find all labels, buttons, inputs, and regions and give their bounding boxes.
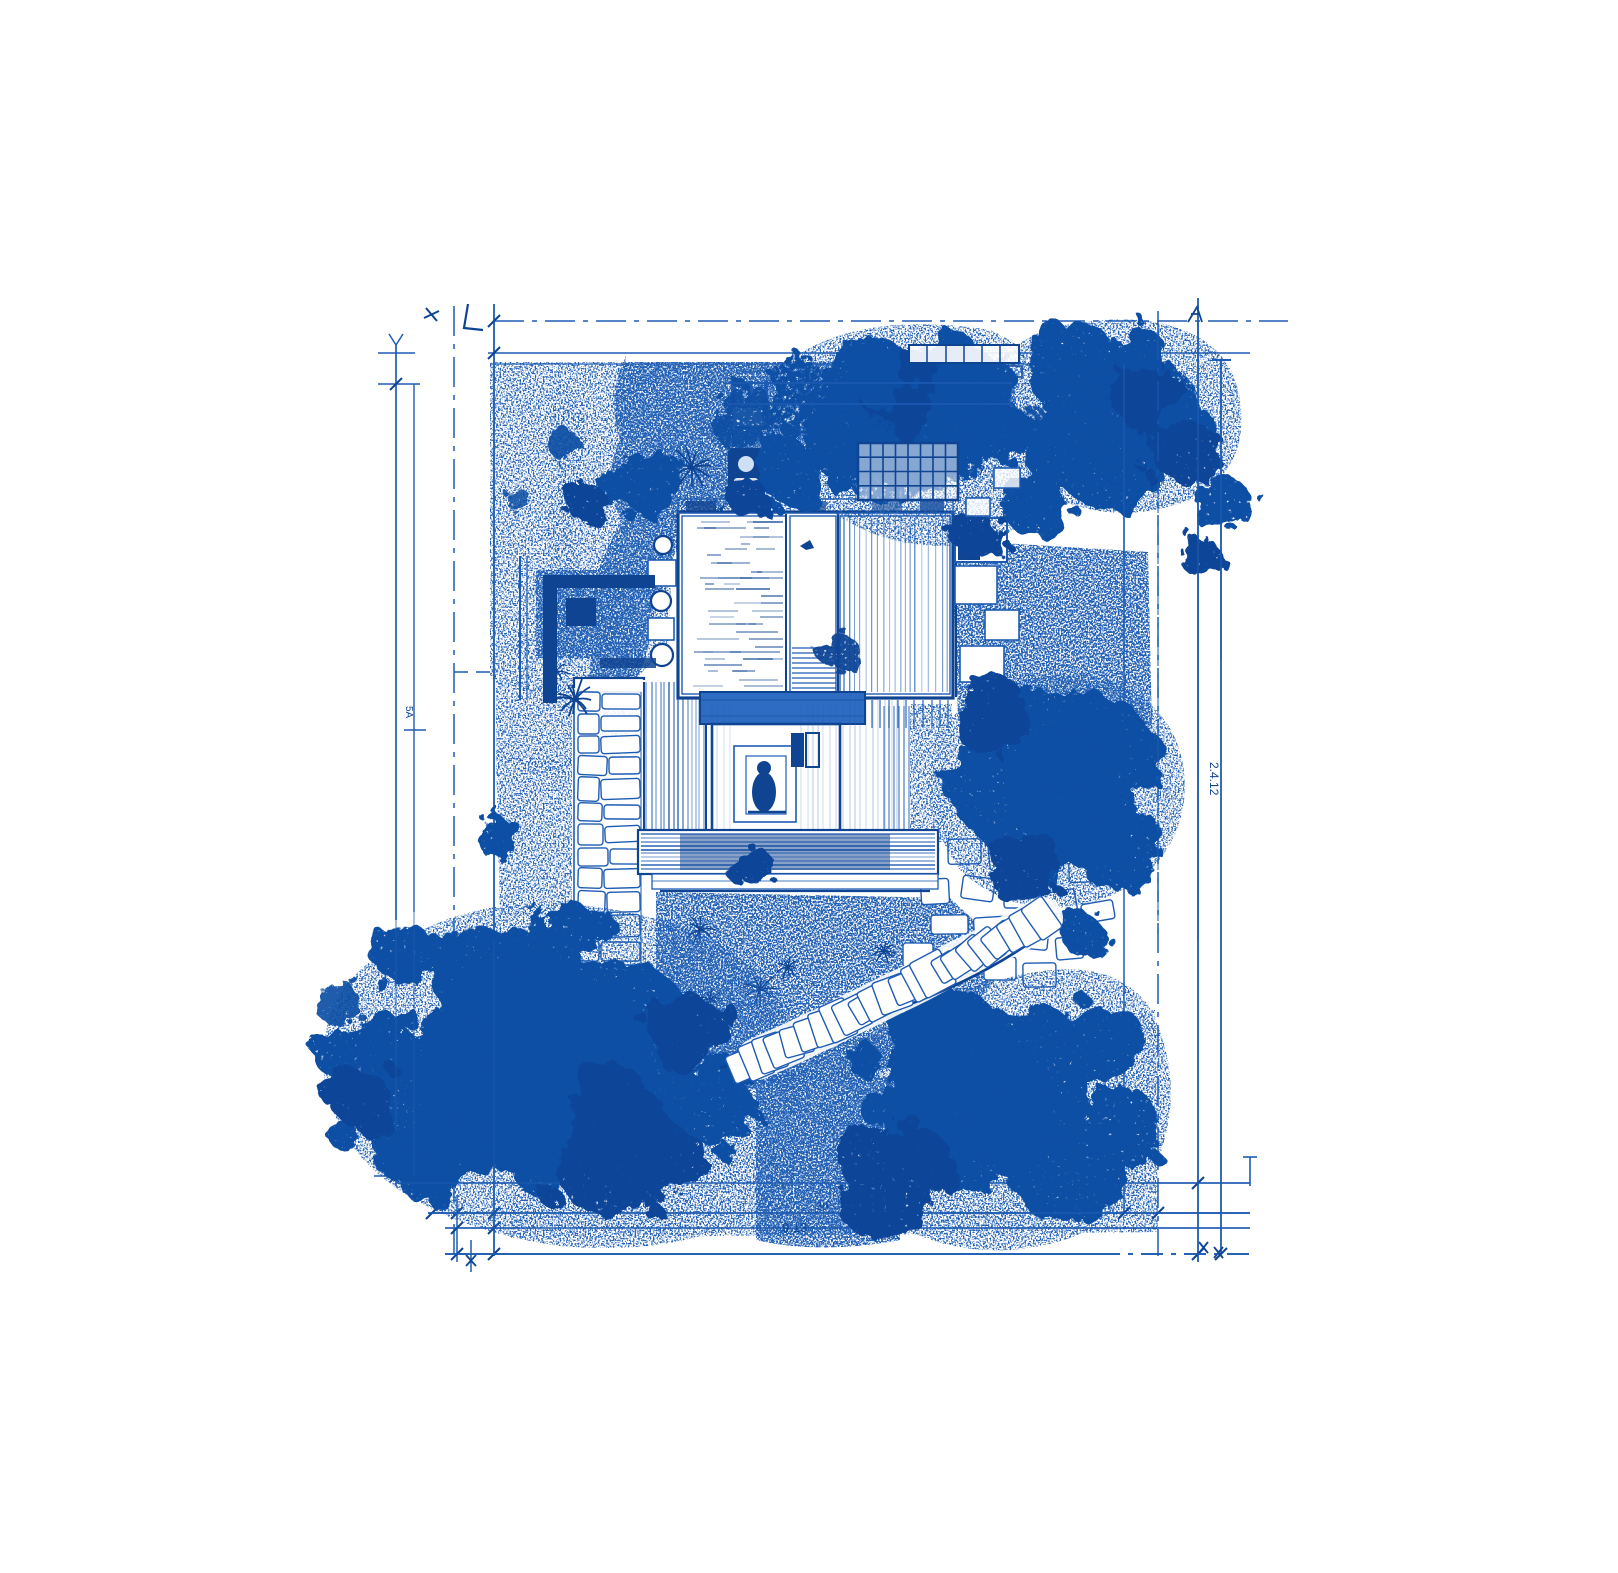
svg-text:2.4.12: 2.4.12 xyxy=(1207,762,1221,796)
svg-text:5A: 5A xyxy=(403,706,414,719)
svg-text:9.13: 9.13 xyxy=(782,1220,807,1235)
svg-text:30: 30 xyxy=(816,1201,828,1213)
